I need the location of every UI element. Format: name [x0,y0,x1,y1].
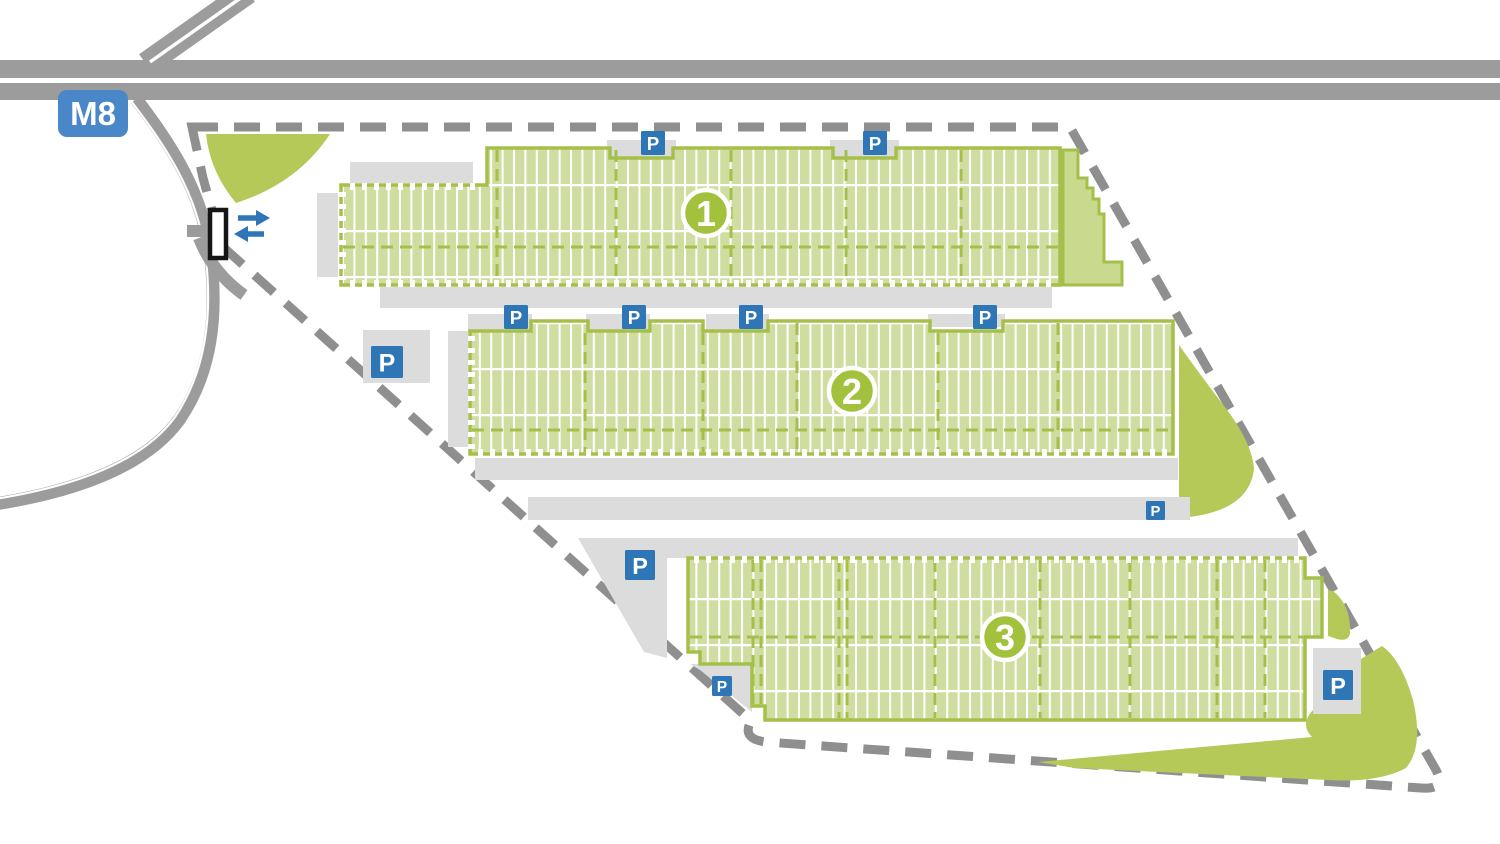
motorway-road [0,0,1500,100]
parking-icon: P [641,131,665,155]
gate-approach [187,225,211,237]
svg-text:P: P [745,307,757,328]
parking-icon: P [1323,670,1353,700]
svg-text:P: P [1151,504,1161,520]
parking-icon: P [712,676,732,696]
svg-text:P: P [1330,673,1346,699]
entrance-gate [210,210,270,258]
svg-text:P: P [510,307,522,328]
parking-icon: P [622,305,646,329]
parking-icon: P [739,305,763,329]
parking-icon: P [973,305,997,329]
parking-icon: P [371,346,403,378]
svg-text:P: P [717,679,727,696]
internal-road [528,497,1190,520]
parking-icon: P [863,131,887,155]
landscape-wedge-northwest [206,134,330,203]
parking-icon: P [504,305,528,329]
building-2-number-badge[interactable]: 2 [829,368,875,414]
building-2[interactable] [470,321,1173,454]
site-plan-page: 1 2 3 PPPPPPPPPPP M8 [0,0,1500,844]
parking-icon: P [625,550,655,580]
svg-text:P: P [979,307,991,328]
access-road-carriageway [0,99,213,504]
building-number: 1 [696,193,716,234]
svg-text:P: P [379,350,396,378]
motorway-carriageway-south [0,83,1500,100]
site-plan-map: 1 2 3 PPPPPPPPPPP M8 [0,0,1500,844]
access-road [0,99,244,504]
parking-icon: P [1146,501,1165,520]
gate-barrier [210,210,226,258]
building-3-number-badge[interactable]: 3 [982,614,1028,660]
arrow-out-icon [234,226,248,242]
motorway-label: M8 [58,90,128,137]
svg-text:P: P [869,133,881,154]
motorway-name: M8 [70,95,116,132]
svg-text:P: P [647,133,659,154]
building-number: 3 [995,617,1015,658]
motorway-carriageway-north [0,60,1500,78]
building-number: 2 [842,371,862,412]
svg-text:P: P [628,307,640,328]
svg-text:P: P [632,553,648,579]
building-1-number-badge[interactable]: 1 [683,190,729,236]
landscape-blob-southeast [1328,590,1350,640]
arrow-in-icon [256,210,270,226]
